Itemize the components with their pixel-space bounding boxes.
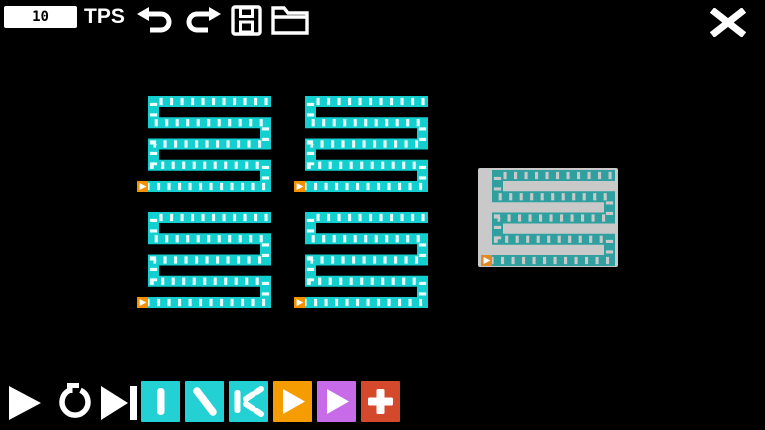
save-button[interactable] xyxy=(231,5,262,41)
conveyor-serpentine-1[interactable] xyxy=(137,96,271,192)
tool-straight-belt[interactable] xyxy=(141,381,180,422)
step-forward-button[interactable] xyxy=(101,386,138,425)
open-folder-icon xyxy=(271,5,309,36)
undo-button[interactable] xyxy=(136,7,174,42)
play-icon xyxy=(273,381,312,422)
play-icon xyxy=(8,386,44,420)
reset-button[interactable] xyxy=(56,383,94,426)
conveyor-serpentine-3[interactable] xyxy=(137,212,271,308)
play-icon xyxy=(317,381,356,422)
play-button[interactable] xyxy=(8,386,44,425)
blueprint-panel[interactable] xyxy=(478,168,618,267)
close-x-icon xyxy=(709,8,747,37)
vertical-bar-icon xyxy=(141,381,180,422)
redo-icon xyxy=(184,7,222,37)
diagonal-bar-icon xyxy=(185,381,224,422)
tool-add[interactable] xyxy=(361,381,400,422)
tool-splitter-belt[interactable] xyxy=(229,381,268,422)
conveyor-serpentine-2[interactable] xyxy=(294,96,428,192)
plus-icon xyxy=(361,381,400,422)
blueprint-serpentine xyxy=(481,170,615,271)
tps-label: TPS xyxy=(84,5,125,29)
game-window: TPS xyxy=(0,0,765,430)
tps-input[interactable] xyxy=(4,6,77,28)
open-file-button[interactable] xyxy=(271,5,309,41)
fork-split-icon xyxy=(229,381,268,422)
tool-spawner-purple[interactable] xyxy=(317,381,356,422)
reset-loop-icon xyxy=(56,383,94,421)
save-floppy-icon xyxy=(231,5,262,36)
conveyor-serpentine-4[interactable] xyxy=(294,212,428,308)
close-button[interactable] xyxy=(709,8,747,42)
redo-button[interactable] xyxy=(184,7,222,42)
undo-icon xyxy=(136,7,174,37)
tool-diagonal-belt[interactable] xyxy=(185,381,224,422)
skip-to-end-icon xyxy=(101,386,138,420)
tool-spawner-orange[interactable] xyxy=(273,381,312,422)
